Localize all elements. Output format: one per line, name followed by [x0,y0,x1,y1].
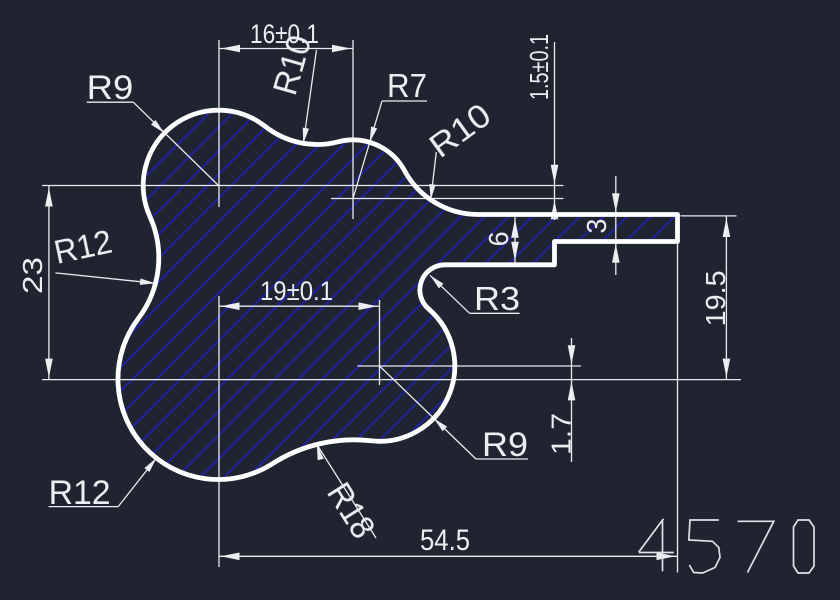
svg-text:R7: R7 [387,67,427,104]
svg-text:1.7: 1.7 [546,413,577,455]
svg-text:6: 6 [483,231,514,246]
svg-text:R9: R9 [482,426,528,464]
svg-text:23: 23 [17,257,48,294]
svg-text:19±0.1: 19±0.1 [260,276,333,306]
svg-text:54.5: 54.5 [420,524,470,557]
svg-text:R9: R9 [87,69,134,107]
svg-text:R3: R3 [474,280,520,317]
svg-text:19.5: 19.5 [700,270,731,326]
svg-text:3: 3 [581,219,612,234]
svg-text:1.5±0.1: 1.5±0.1 [524,34,554,100]
